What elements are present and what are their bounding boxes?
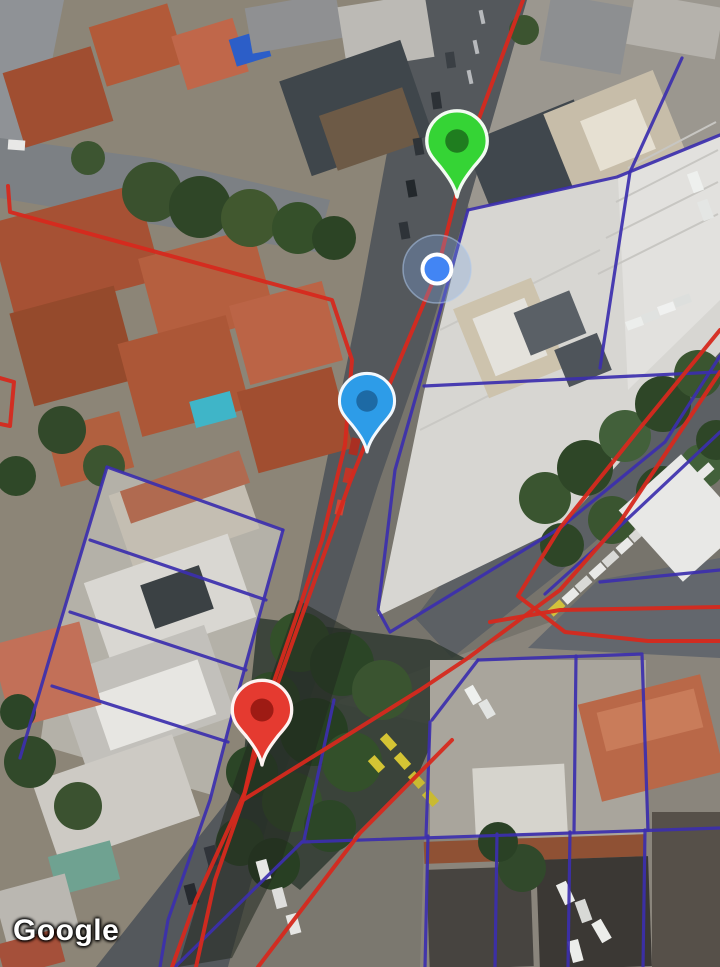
current-location-indicator bbox=[403, 235, 471, 303]
aerial-imagery bbox=[0, 0, 720, 967]
google-logo-watermark[interactable]: Google bbox=[13, 914, 119, 948]
satellite-map-view[interactable]: Google bbox=[0, 0, 720, 967]
